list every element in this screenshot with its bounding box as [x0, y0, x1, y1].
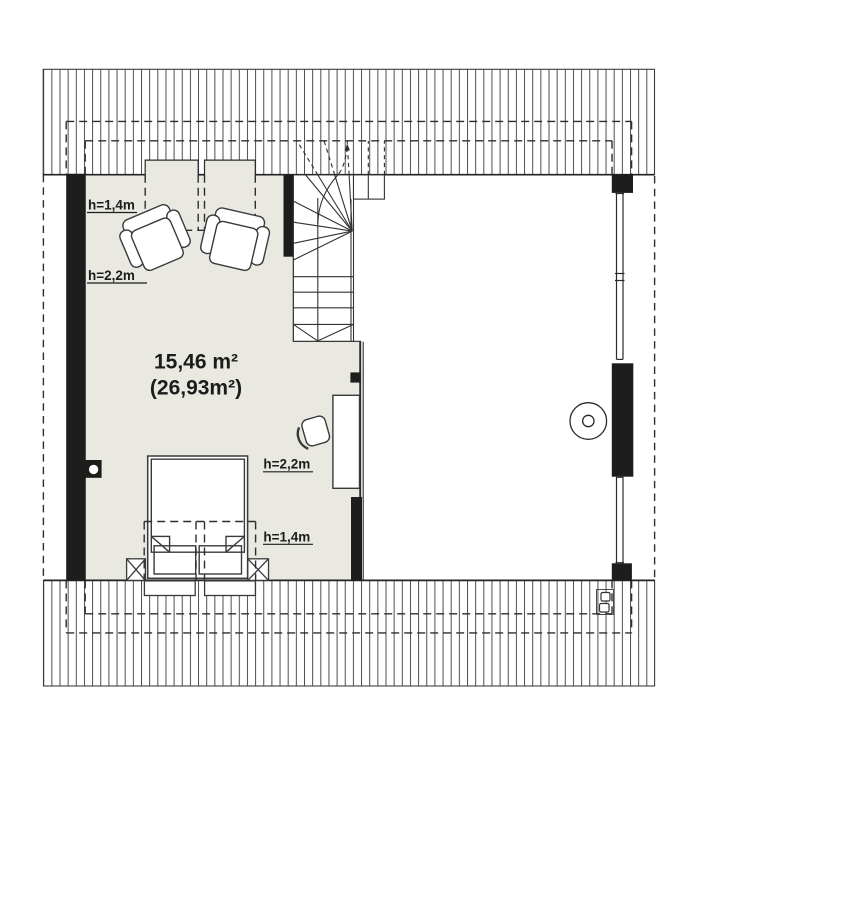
svg-text:h=1,4m: h=1,4m: [88, 198, 135, 213]
svg-text:15,46 m²: 15,46 m²: [154, 351, 238, 374]
svg-text:h=2,2m: h=2,2m: [88, 268, 135, 283]
svg-text:(26,93m²): (26,93m²): [150, 377, 242, 400]
svg-text:h=2,2m: h=2,2m: [263, 457, 310, 472]
svg-text:h=1,4m: h=1,4m: [263, 530, 310, 545]
